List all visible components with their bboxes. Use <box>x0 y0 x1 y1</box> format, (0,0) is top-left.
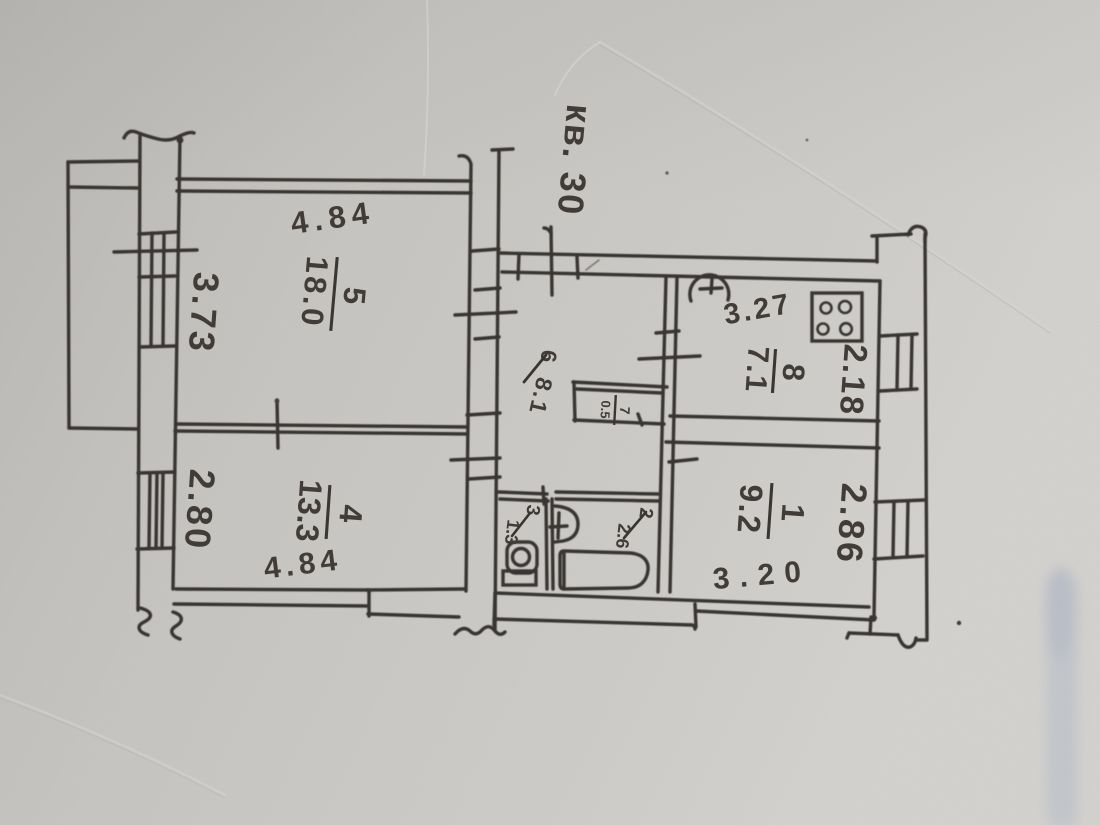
svg-text:2.18: 2.18 <box>833 343 875 418</box>
svg-text:2.80: 2.80 <box>177 468 224 553</box>
svg-text:3.73: 3.73 <box>181 271 228 356</box>
svg-text:1: 1 <box>774 502 811 522</box>
svg-text:5: 5 <box>336 286 372 306</box>
svg-text:18.0: 18.0 <box>294 255 335 330</box>
svg-text:0.5: 0.5 <box>598 400 614 419</box>
svg-text:13.3: 13.3 <box>289 478 329 543</box>
svg-text:2.86: 2.86 <box>829 482 876 567</box>
svg-text:7.1: 7.1 <box>738 345 774 395</box>
svg-text:9.2: 9.2 <box>730 483 769 536</box>
svg-text:7: 7 <box>617 406 633 415</box>
svg-text:8: 8 <box>775 363 811 383</box>
svg-text:1.3: 1.3 <box>501 519 524 546</box>
svg-text:4: 4 <box>332 503 369 523</box>
svg-text:2.6: 2.6 <box>612 523 635 550</box>
